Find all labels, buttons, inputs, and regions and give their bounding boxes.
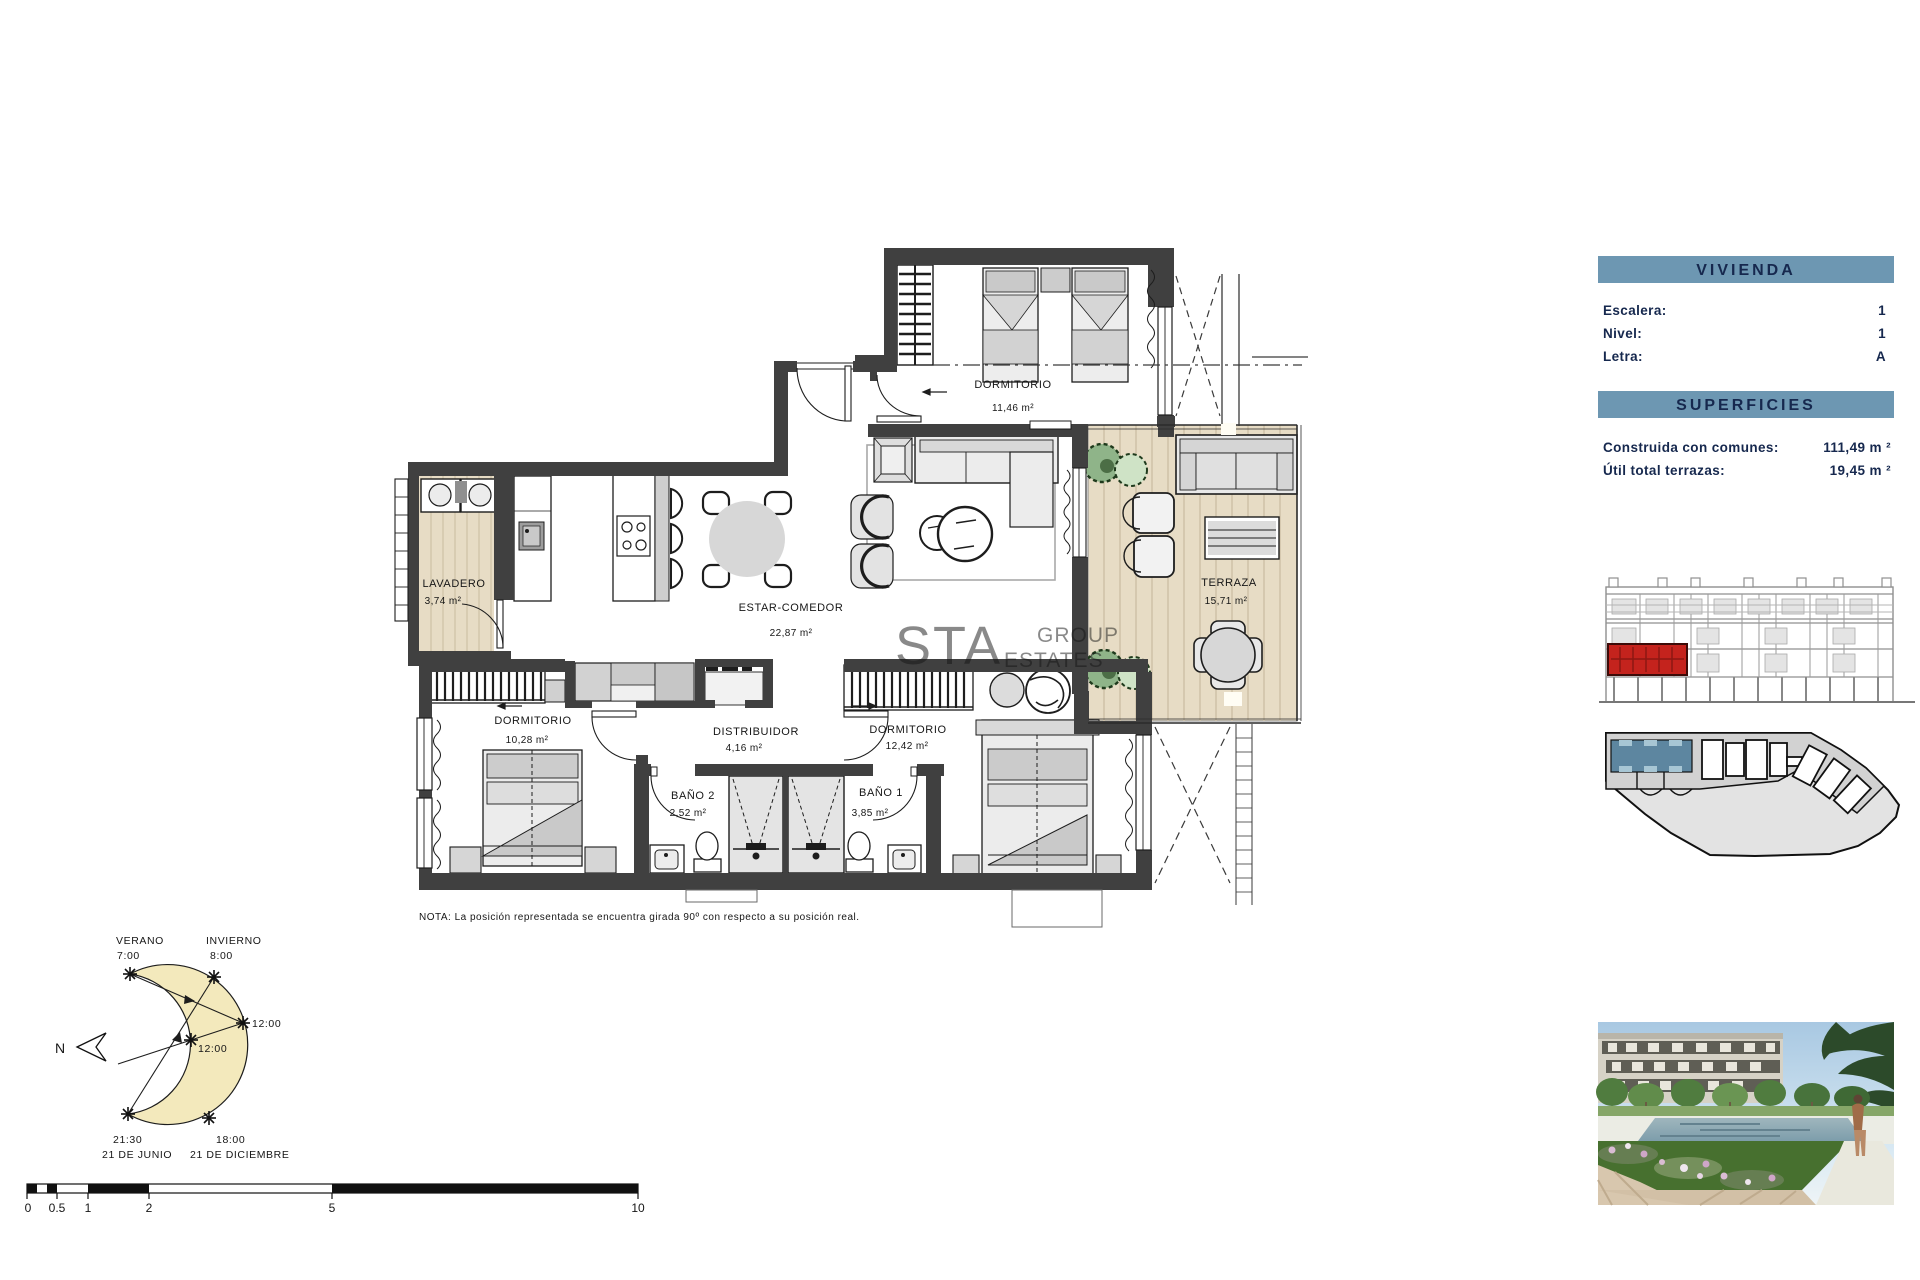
svg-text:NOTA: La posición representada: NOTA: La posición representada se encuen… — [419, 912, 860, 923]
svg-text:21 DE DICIEMBRE: 21 DE DICIEMBRE — [190, 1149, 289, 1161]
svg-text:INVIERNO: INVIERNO — [206, 935, 262, 947]
svg-text:1: 1 — [1878, 303, 1886, 318]
svg-text:21 DE JUNIO: 21 DE JUNIO — [102, 1149, 172, 1161]
svg-text:1: 1 — [1878, 326, 1886, 341]
svg-text:STA: STA — [895, 616, 1002, 676]
svg-text:Nivel:: Nivel: — [1603, 326, 1642, 341]
svg-text:2: 2 — [146, 1201, 153, 1215]
svg-text:DISTRIBUIDOR: DISTRIBUIDOR — [713, 726, 799, 738]
svg-text:VIVIENDA: VIVIENDA — [1696, 262, 1796, 279]
svg-text:10,28 m²: 10,28 m² — [506, 735, 549, 746]
svg-text:21:30: 21:30 — [113, 1134, 142, 1146]
svg-text:0.5: 0.5 — [49, 1201, 66, 1215]
svg-text:ESTATES: ESTATES — [1004, 649, 1104, 672]
svg-text:DORMITORIO: DORMITORIO — [869, 724, 946, 736]
svg-text:19,45 m ²: 19,45 m ² — [1830, 463, 1891, 478]
svg-text:3,74 m²: 3,74 m² — [425, 596, 462, 607]
svg-text:10: 10 — [631, 1201, 645, 1215]
svg-text:8:00: 8:00 — [210, 950, 233, 962]
svg-text:BAÑO 1: BAÑO 1 — [859, 786, 903, 799]
svg-text:TERRAZA: TERRAZA — [1201, 577, 1257, 589]
svg-text:0: 0 — [25, 1201, 32, 1215]
svg-text:4,16 m²: 4,16 m² — [726, 743, 763, 754]
svg-text:DORMITORIO: DORMITORIO — [974, 379, 1051, 391]
svg-text:BAÑO 2: BAÑO 2 — [671, 789, 715, 802]
svg-text:15,71 m²: 15,71 m² — [1205, 596, 1248, 607]
svg-text:11,46 m²: 11,46 m² — [992, 403, 1034, 414]
svg-text:ESTAR-COMEDOR: ESTAR-COMEDOR — [739, 602, 844, 614]
svg-text:A: A — [1876, 349, 1886, 364]
svg-text:2,52 m²: 2,52 m² — [670, 808, 707, 819]
svg-text:Letra:: Letra: — [1603, 349, 1643, 364]
svg-text:18:00: 18:00 — [216, 1134, 245, 1146]
svg-text:SUPERFICIES: SUPERFICIES — [1676, 397, 1816, 414]
svg-text:22,87 m²: 22,87 m² — [770, 628, 813, 639]
svg-text:7:00: 7:00 — [117, 950, 140, 962]
svg-text:5: 5 — [329, 1201, 336, 1215]
svg-text:DORMITORIO: DORMITORIO — [494, 715, 571, 727]
svg-text:Construida con comunes:: Construida con comunes: — [1603, 440, 1779, 455]
svg-text:LAVADERO: LAVADERO — [422, 578, 485, 590]
svg-text:3,85 m²: 3,85 m² — [852, 808, 889, 819]
svg-text:VERANO: VERANO — [116, 935, 164, 947]
svg-text:12:00: 12:00 — [252, 1018, 281, 1030]
svg-text:Escalera:: Escalera: — [1603, 303, 1667, 318]
svg-text:Útil total terrazas:: Útil total terrazas: — [1603, 463, 1725, 478]
svg-text:111,49 m ²: 111,49 m ² — [1823, 440, 1891, 455]
svg-text:GROUP: GROUP — [1037, 624, 1119, 647]
svg-text:12,42 m²: 12,42 m² — [886, 741, 929, 752]
svg-text:12:00: 12:00 — [198, 1043, 227, 1055]
svg-text:1: 1 — [85, 1201, 92, 1215]
svg-text:N: N — [55, 1040, 65, 1056]
